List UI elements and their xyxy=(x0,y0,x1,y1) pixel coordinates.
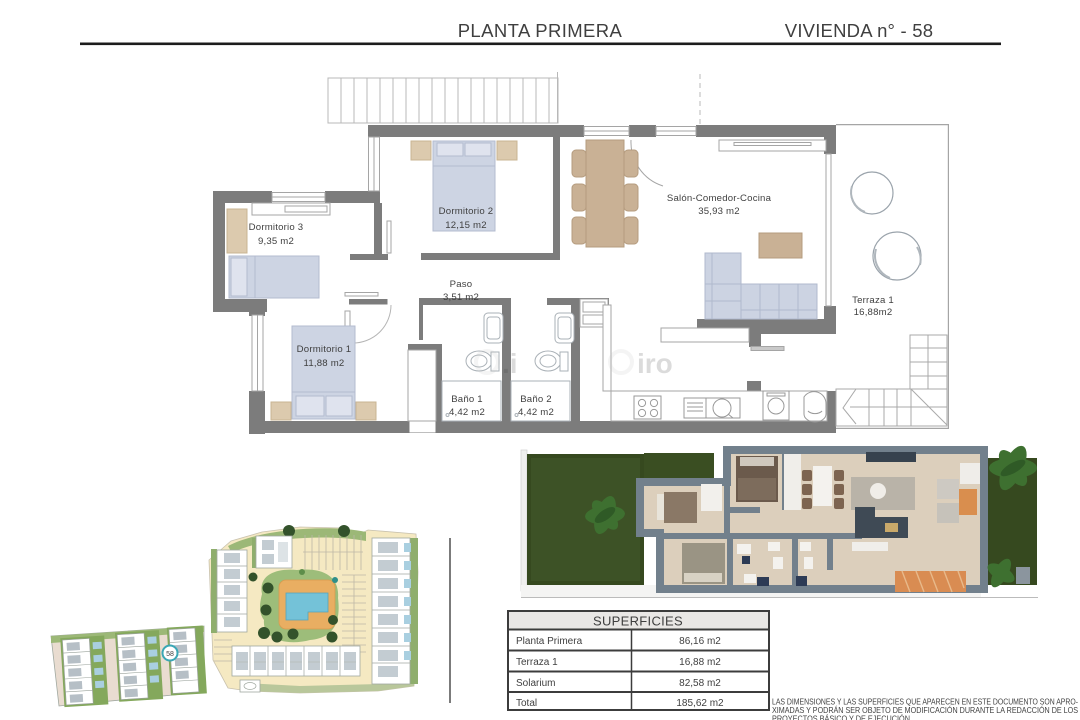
svg-text:.i: .i xyxy=(502,348,518,379)
svg-text:Paso: Paso xyxy=(450,279,473,290)
svg-text:Solarium: Solarium xyxy=(516,678,555,689)
svg-text:SUPERFICIES: SUPERFICIES xyxy=(593,614,683,629)
svg-text:3,51 m2: 3,51 m2 xyxy=(443,292,479,303)
svg-text:iro: iro xyxy=(637,348,673,379)
svg-text:Dormitorio 1: Dormitorio 1 xyxy=(297,344,352,355)
svg-text:VIVIENDA n° - 58: VIVIENDA n° - 58 xyxy=(785,20,933,41)
svg-text:Salón-Comedor-Cocina: Salón-Comedor-Cocina xyxy=(667,193,772,204)
svg-text:35,93 m2: 35,93 m2 xyxy=(698,206,740,217)
svg-text:185,62 m2: 185,62 m2 xyxy=(676,698,724,709)
svg-text:82,58 m2: 82,58 m2 xyxy=(679,678,721,689)
svg-text:16,88 m2: 16,88 m2 xyxy=(679,657,721,668)
svg-text:86,16 m2: 86,16 m2 xyxy=(679,636,721,647)
svg-text:Baño 1: Baño 1 xyxy=(451,394,483,405)
svg-text:Dormitorio 3: Dormitorio 3 xyxy=(249,222,304,233)
svg-text:11,88 m2: 11,88 m2 xyxy=(304,358,345,369)
svg-text:Baño 2: Baño 2 xyxy=(520,394,552,405)
svg-text:16,88m2: 16,88m2 xyxy=(854,307,893,318)
svg-text:Planta Primera: Planta Primera xyxy=(516,636,583,647)
svg-text:12,15 m2: 12,15 m2 xyxy=(445,220,487,231)
svg-text:PLANTA PRIMERA: PLANTA PRIMERA xyxy=(458,20,623,41)
svg-text:Dormitorio 2: Dormitorio 2 xyxy=(439,206,494,217)
svg-text:4,42 m2: 4,42 m2 xyxy=(449,407,485,418)
svg-text:58: 58 xyxy=(166,651,174,658)
svg-text:PROYECTOS BÁSICO Y DE EJECUCIÓ: PROYECTOS BÁSICO Y DE EJECUCIÓN. xyxy=(772,714,912,720)
svg-text:9,35 m2: 9,35 m2 xyxy=(258,236,294,247)
svg-text:4,42 m2: 4,42 m2 xyxy=(518,407,554,418)
svg-text:Terraza 1: Terraza 1 xyxy=(516,657,558,668)
svg-text:Terraza 1: Terraza 1 xyxy=(852,295,894,306)
svg-text:Total: Total xyxy=(516,698,537,709)
